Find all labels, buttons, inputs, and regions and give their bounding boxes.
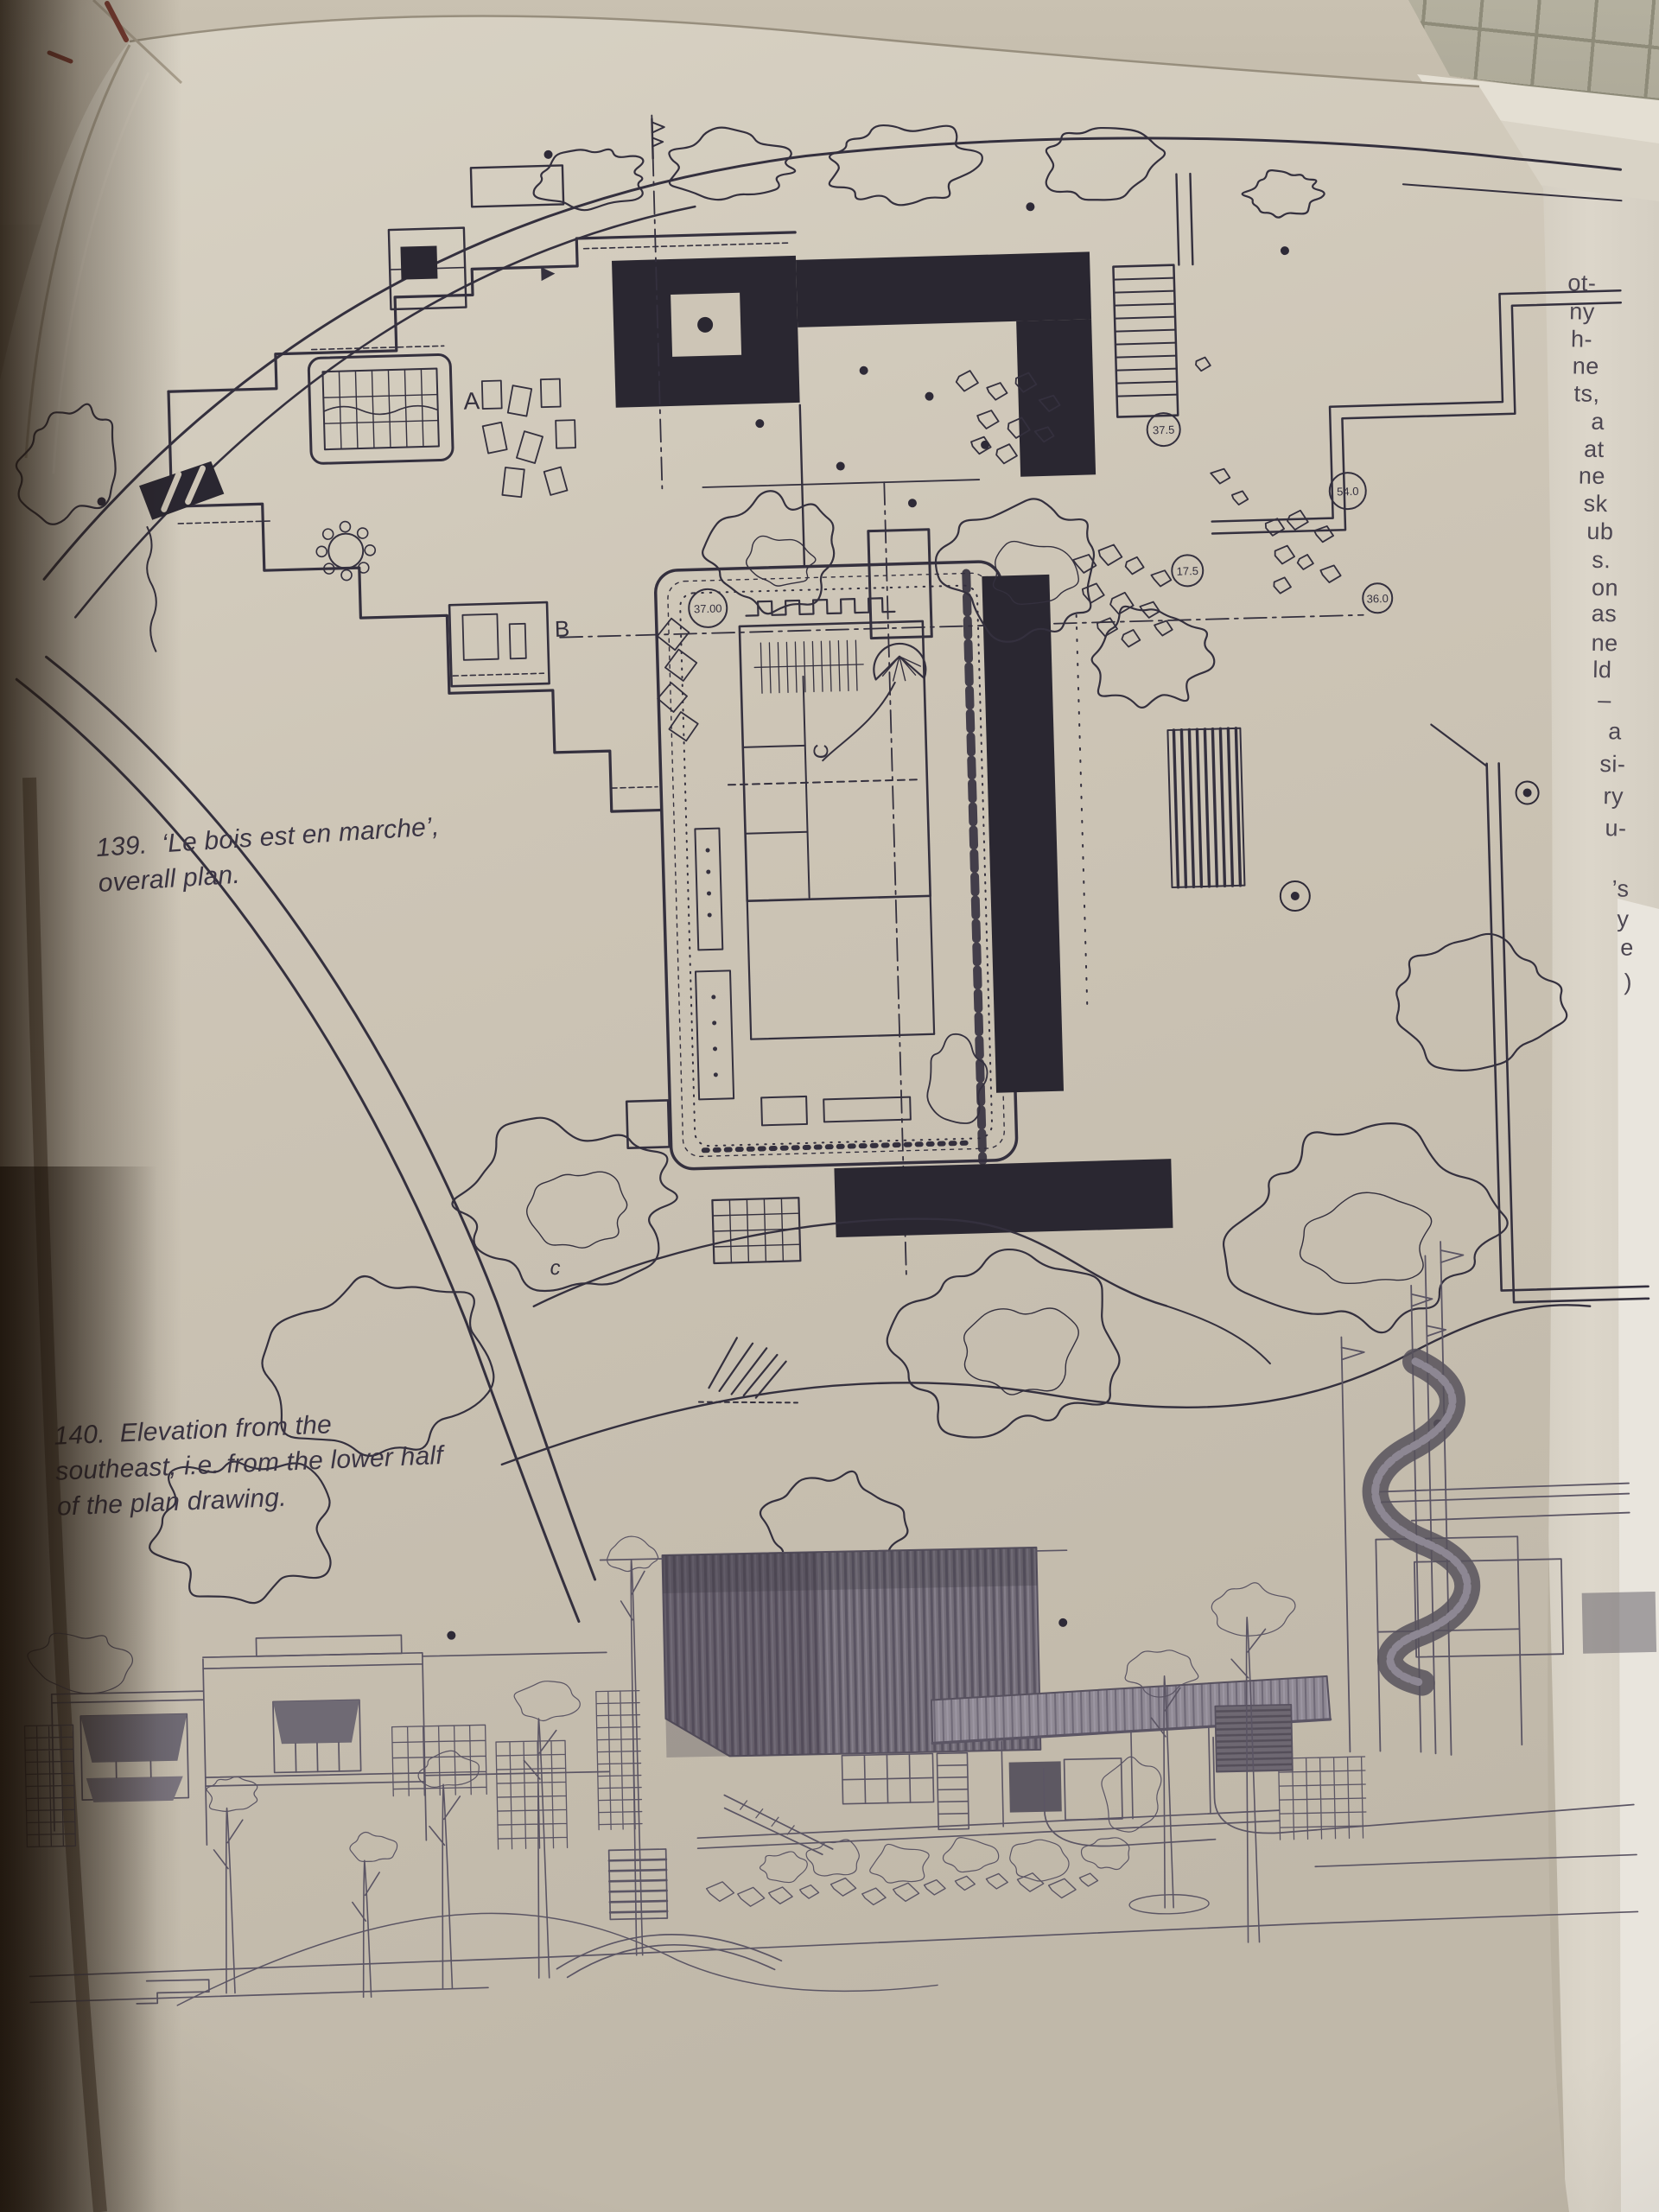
edge-text-fragment: a: [1591, 409, 1605, 435]
edge-text-fragment: ry: [1603, 783, 1624, 810]
edge-text-fragment: sk: [1583, 491, 1608, 518]
edge-text-fragment: ny: [1569, 298, 1595, 326]
edge-text-fragment: ): [1624, 969, 1632, 996]
edge-text-fragment: a: [1608, 718, 1622, 745]
edge-text-fragment: on: [1592, 575, 1619, 602]
edge-text-fragment: ne: [1579, 463, 1606, 491]
edge-text-fragment: as: [1591, 601, 1617, 628]
edge-text-fragment: h-: [1571, 326, 1593, 353]
edge-text-fragment: ts,: [1573, 380, 1600, 408]
edge-text-fragment: ne: [1591, 630, 1618, 658]
edge-text-fragment: si-: [1599, 751, 1626, 779]
edge-text-fragment: u-: [1605, 815, 1627, 842]
edge-text-fragment: ub: [1586, 518, 1614, 546]
edge-text-fragment: ot-: [1567, 270, 1597, 297]
edge-text-fragment: s.: [1592, 547, 1611, 574]
edge-text-fragment: ld: [1592, 657, 1612, 683]
edge-text-fragment: ’s: [1611, 875, 1630, 902]
edge-text-fragment: y: [1617, 906, 1630, 932]
edge-text-fragment: ne: [1572, 353, 1599, 380]
book-photo: 37.00 37.5 17.5 54.0 36.0 A B c C: [0, 0, 1659, 2212]
edge-text-fragment: e: [1620, 935, 1634, 962]
edge-text-fragment: at: [1584, 436, 1605, 463]
edge-text-fragment: –: [1598, 687, 1611, 714]
edge-text-column: ot-nyh-nets,aatneskubs.onasneld–asi-ryu-…: [0, 0, 1659, 2212]
gutter-shadow-lower: [0, 1166, 225, 2212]
